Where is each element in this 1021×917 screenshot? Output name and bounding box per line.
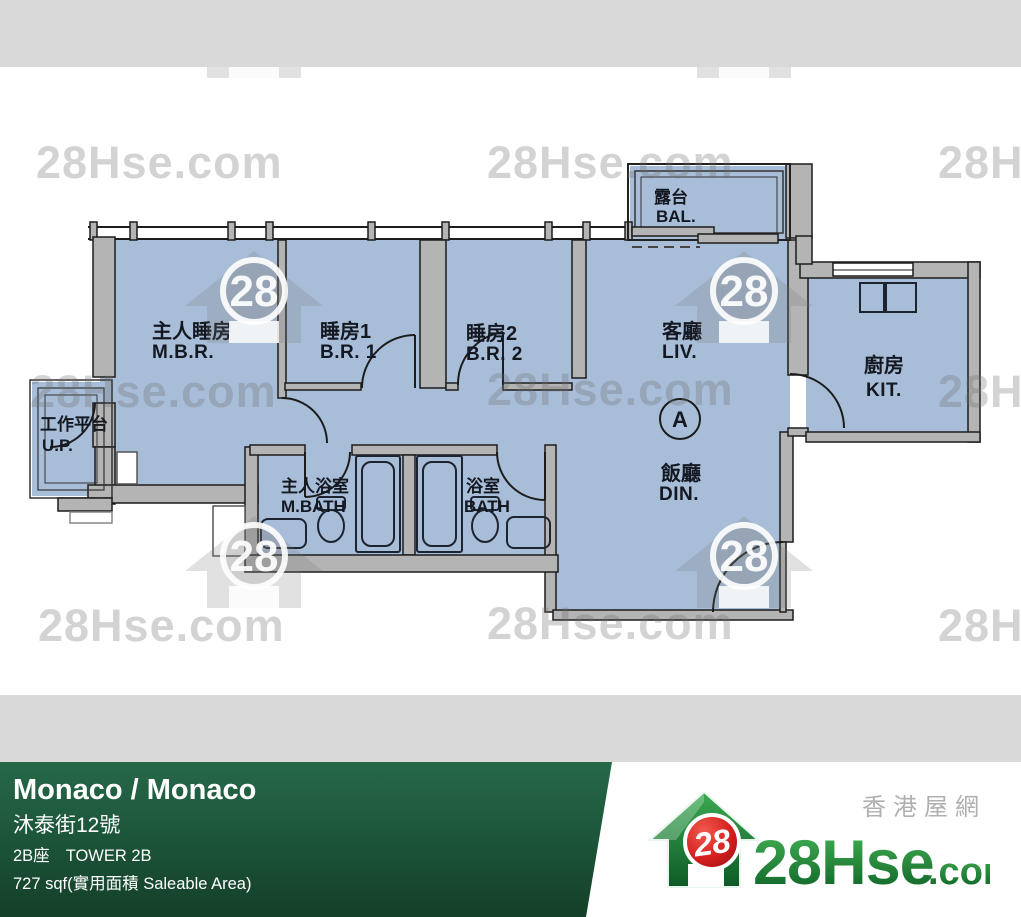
watermark-text: 28Hse.com — [938, 366, 1021, 417]
floor-plan: 28 — [0, 0, 1021, 762]
bottom-gray-band — [0, 695, 1021, 762]
logo-28-badge: 28 — [685, 815, 739, 869]
room-label-br1: 睡房1 B.R. 1 — [320, 319, 377, 363]
svg-text:BATH: BATH — [464, 497, 510, 516]
svg-text:客廳: 客廳 — [661, 319, 702, 343]
svg-text:DIN.: DIN. — [659, 484, 699, 505]
brand-logo: 28 香港屋網 28Hse .com — [640, 780, 990, 900]
logo-tagline: 香港屋網 — [862, 794, 986, 821]
brand-text-suffix: .com — [928, 851, 990, 893]
svg-text:M.BATH: M.BATH — [281, 497, 346, 516]
room-label-br2: 睡房2 B.R. 2 — [466, 321, 523, 365]
svg-text:BAL.: BAL. — [656, 207, 696, 226]
wall-notch — [117, 452, 137, 484]
svg-text:B.R. 1: B.R. 1 — [320, 342, 377, 363]
svg-text:U.P.: U.P. — [42, 436, 73, 455]
watermark-text: 28Hse.com — [487, 598, 734, 649]
tower-label: 2B座TOWER 2B — [13, 842, 700, 871]
kitchen-window — [833, 263, 913, 276]
watermark-text: 28Hse.com — [30, 366, 277, 417]
room-label-din: 飯廳 DIN. — [659, 461, 701, 505]
project-title: Monaco / Monaco — [13, 772, 700, 809]
svg-text:工作平台: 工作平台 — [40, 414, 108, 434]
svg-text:浴室: 浴室 — [466, 476, 500, 496]
svg-text:主人浴室: 主人浴室 — [281, 476, 349, 496]
svg-text:KIT.: KIT. — [866, 380, 902, 401]
tower-label-en: TOWER 2B — [66, 847, 152, 865]
room-label-liv: 客廳 LIV. — [661, 319, 702, 363]
svg-text:B.R. 2: B.R. 2 — [466, 344, 523, 365]
watermark-text: 28Hse.com — [487, 364, 734, 415]
svg-text:睡房2: 睡房2 — [466, 321, 517, 345]
watermark-text: 28Hse.com — [36, 137, 283, 188]
info-bar-green-panel: Monaco / Monaco 沐泰街12號 2B座TOWER 2B 727 s… — [0, 762, 700, 917]
svg-text:LIV.: LIV. — [662, 342, 697, 363]
floor-plan-page: 28 — [0, 0, 1021, 917]
watermark-text: 28Hse.com — [38, 600, 285, 651]
svg-text:28: 28 — [690, 822, 733, 864]
top-gray-band — [0, 0, 1021, 67]
brand-text-main: 28Hse — [753, 828, 934, 898]
window-mullions — [90, 222, 632, 240]
watermark-text: 28Hse.com — [487, 137, 734, 188]
area-label: 727 sqf(實用面積 Saleable Area) — [13, 871, 700, 898]
svg-text:M.B.R.: M.B.R. — [152, 342, 214, 363]
logo-house-icon: 28 — [650, 792, 758, 887]
svg-text:飯廳: 飯廳 — [660, 461, 701, 485]
project-address: 沐泰街12號 — [13, 809, 700, 842]
svg-text:露台: 露台 — [654, 187, 688, 207]
tower-label-cn: 2B座 — [13, 847, 50, 865]
svg-text:廚房: 廚房 — [864, 353, 904, 377]
svg-text:睡房1: 睡房1 — [320, 319, 371, 343]
watermark-text: 28Hse.com — [938, 137, 1021, 188]
watermark-text: 28Hse.com — [938, 600, 1021, 651]
